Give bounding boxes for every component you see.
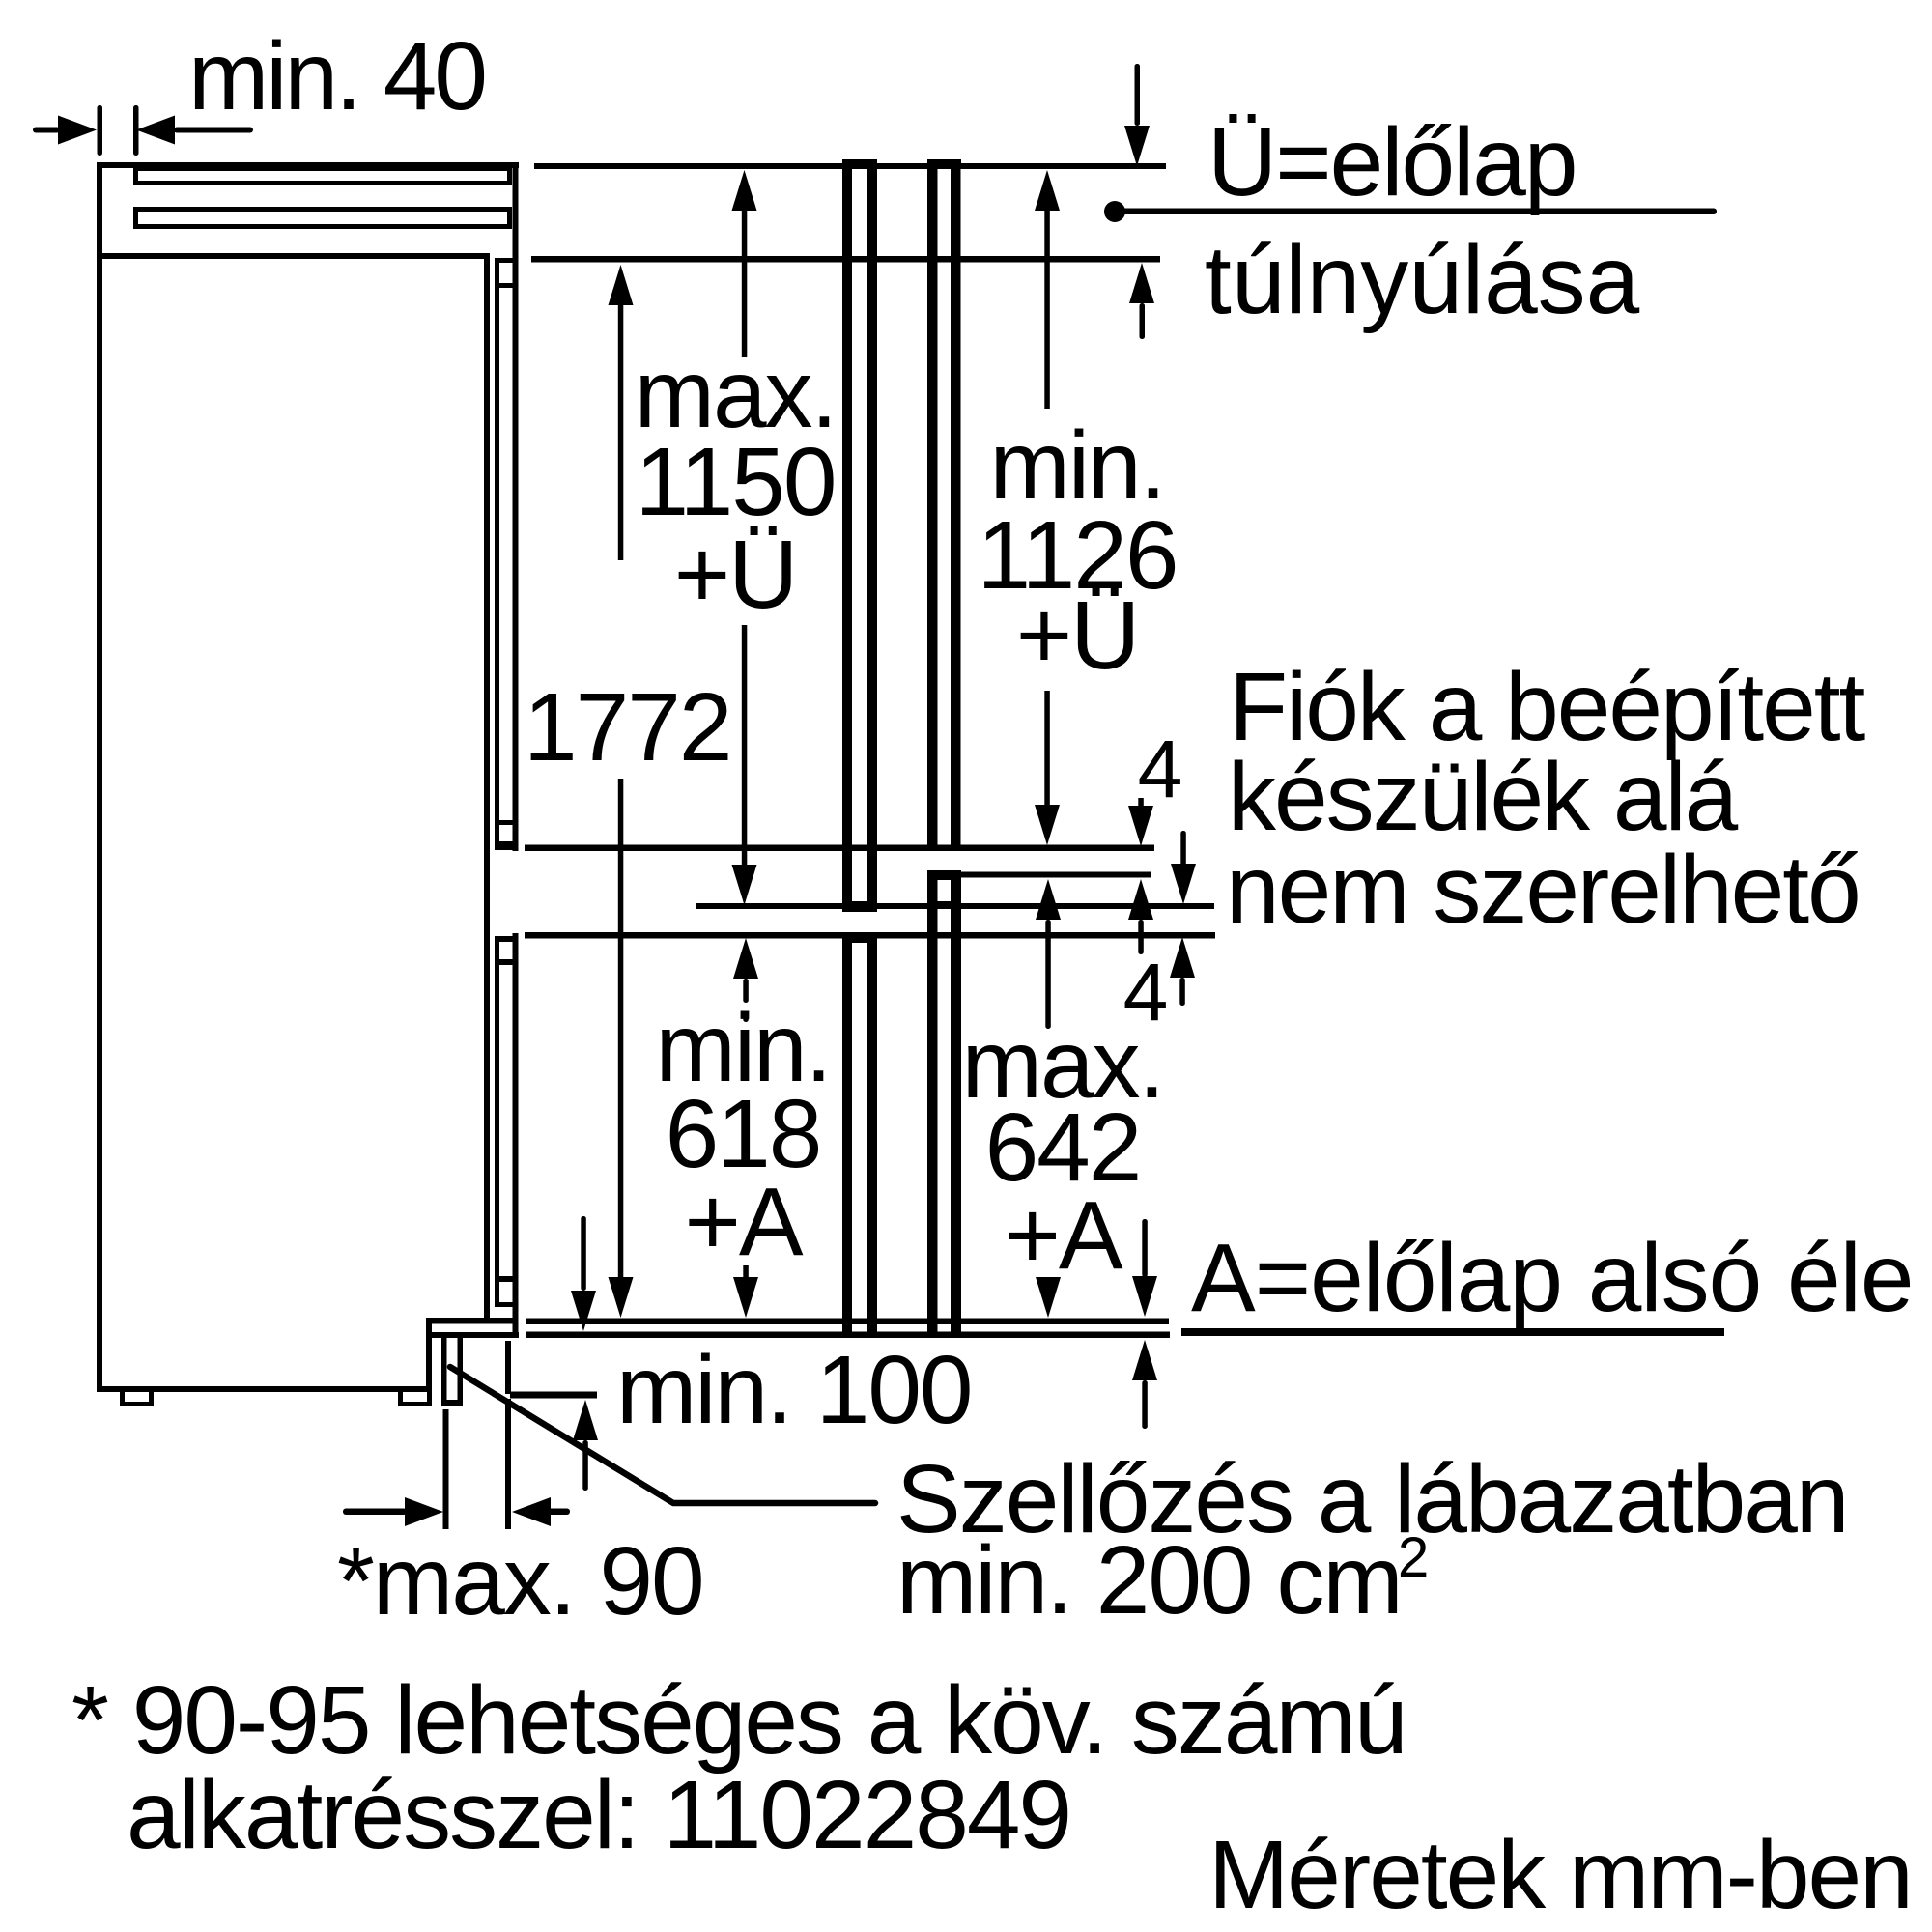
svg-text:min. 100: min. 100	[616, 1336, 972, 1444]
svg-text:1772: 1772	[524, 673, 730, 781]
svg-text:+Ü: +Ü	[1016, 582, 1139, 690]
svg-text:4: 4	[1138, 724, 1181, 814]
svg-text:* 90-95 lehetséges a köv. szám: * 90-95 lehetséges a köv. számú	[71, 1666, 1406, 1775]
svg-text:2: 2	[1398, 1526, 1427, 1589]
svg-text:Ü=előlap: Ü=előlap	[1207, 108, 1577, 216]
svg-text:nem szerelhető: nem szerelhető	[1226, 836, 1860, 944]
svg-text:+A: +A	[1004, 1181, 1122, 1290]
svg-text:A=előlap alsó éle: A=előlap alsó éle	[1191, 1224, 1913, 1332]
svg-text:+Ü: +Ü	[674, 521, 797, 629]
svg-text:Méretek mm-ben: Méretek mm-ben	[1208, 1821, 1912, 1929]
svg-text:*max. 90: *max. 90	[337, 1527, 703, 1635]
svg-text:alkatrésszel: 11022849: alkatrésszel: 11022849	[127, 1761, 1070, 1869]
svg-text:min. 40: min. 40	[188, 22, 485, 130]
svg-text:túlnyúlása: túlnyúlása	[1205, 226, 1640, 334]
svg-text:+A: +A	[684, 1168, 803, 1276]
svg-text:min. 200 cm: min. 200 cm	[896, 1526, 1402, 1634]
